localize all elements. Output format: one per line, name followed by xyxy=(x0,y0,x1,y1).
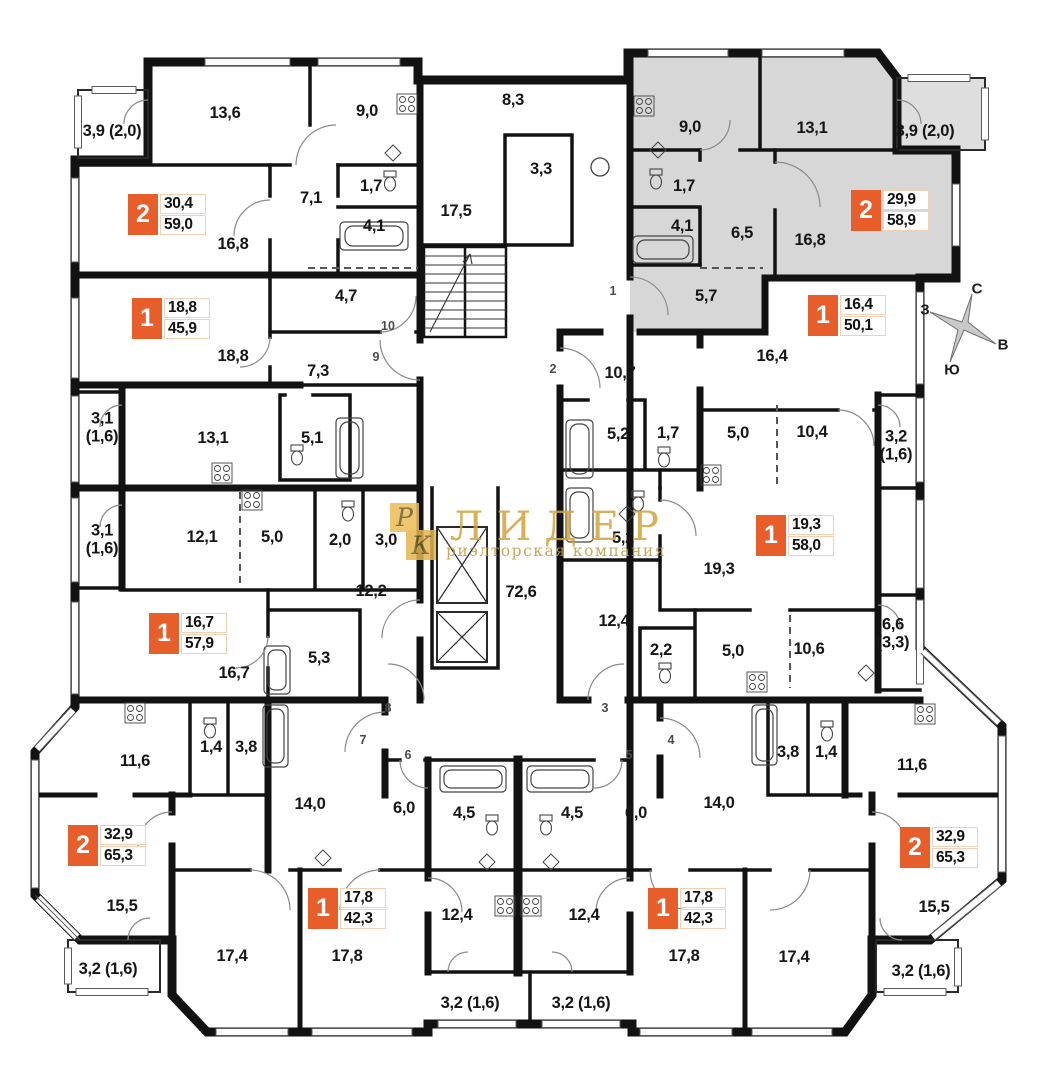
room-area-label: 4,7 xyxy=(335,287,357,305)
room-area-label: 12,2 xyxy=(356,582,387,600)
room-area-label: 16,7 xyxy=(219,664,250,682)
room-area-label: 11,6 xyxy=(897,756,927,774)
room-area-label: 18,8 xyxy=(218,347,249,365)
room-area-label: 5,2 xyxy=(612,529,634,547)
compass-star-icon xyxy=(930,294,996,362)
entrance-number: 2 xyxy=(550,362,557,376)
unit-badge: 1 17,8 42,3 xyxy=(308,888,386,929)
unit-rooms-count: 1 xyxy=(132,298,162,339)
unit-total-area: 42,3 xyxy=(680,909,726,929)
compass-west-label: З xyxy=(920,302,929,319)
room-area-label: 3,2 (1,6) xyxy=(552,994,611,1012)
unit-total-area: 65,3 xyxy=(100,846,146,866)
unit-living-area: 17,8 xyxy=(340,888,386,908)
unit-living-area: 29,9 xyxy=(883,190,929,210)
room-area-label: 16,8 xyxy=(218,235,249,253)
room-area-label: 9,0 xyxy=(679,118,701,136)
room-area-label: 5,0 xyxy=(722,642,744,660)
unit-total-area: 42,3 xyxy=(340,909,386,929)
unit-living-area: 30,4 xyxy=(160,194,206,214)
entrance-number: 3 xyxy=(602,701,609,715)
room-area-label: 15,5 xyxy=(919,898,950,916)
unit-rooms-count: 1 xyxy=(648,888,678,929)
unit-badge: 2 29,9 58,9 xyxy=(851,190,929,231)
room-area-label: 14,0 xyxy=(704,794,735,812)
room-area-label: 4,5 xyxy=(453,804,475,822)
unit-badge: 1 19,3 58,0 xyxy=(756,515,834,556)
unit-total-area: 58,9 xyxy=(883,211,929,231)
room-area-label: 3,3 xyxy=(530,160,552,178)
unit-badge: 2 32,9 65,3 xyxy=(900,827,978,868)
unit-total-area: 58,0 xyxy=(788,536,834,556)
room-area-label: 12,4 xyxy=(442,906,473,924)
room-area-label: 12,4 xyxy=(599,612,630,630)
room-area-label: 3,1 (1,6) xyxy=(75,522,129,559)
room-area-label: 4,1 xyxy=(671,217,693,235)
unit-living-area: 16,4 xyxy=(840,295,886,315)
room-area-label: 19,3 xyxy=(704,560,735,578)
unit-badge: 1 16,4 50,1 xyxy=(808,295,886,336)
room-area-label: 3,1 (1,6) xyxy=(75,410,129,447)
room-area-label: 4,1 xyxy=(363,217,385,235)
room-area-label: 3,2 (1,6) xyxy=(869,428,923,465)
unit-rooms-count: 1 xyxy=(756,515,786,556)
room-area-label: 1,4 xyxy=(200,738,222,756)
unit-total-area: 65,3 xyxy=(932,848,978,868)
entrance-number: 10 xyxy=(381,319,395,333)
unit-total-area: 50,1 xyxy=(840,316,886,336)
room-area-label: 12,1 xyxy=(187,528,218,546)
room-area-label: 72,6 xyxy=(506,583,537,601)
room-area-label: 13,6 xyxy=(210,104,241,122)
room-area-label: 6,6 (3,3) xyxy=(866,616,920,653)
room-area-label: 3,2 (1,6) xyxy=(79,960,138,978)
entrance-number: 5 xyxy=(626,748,633,762)
entrance-number: 6 xyxy=(405,748,412,762)
room-area-label: 6,5 xyxy=(731,224,753,242)
room-area-label: 6,0 xyxy=(393,799,415,817)
room-area-label: 1,7 xyxy=(673,177,695,195)
unit-rooms-count: 2 xyxy=(900,827,930,868)
unit-living-area: 32,9 xyxy=(932,827,978,847)
room-area-label: 3,9 (2,0) xyxy=(896,122,955,140)
room-area-label: 10,6 xyxy=(794,640,825,658)
room-area-label: 3,2 (1,6) xyxy=(892,962,951,980)
unit-total-area: 57,9 xyxy=(181,634,227,654)
room-area-label: 15,5 xyxy=(107,897,138,915)
unit-living-area: 18,8 xyxy=(164,298,210,318)
room-area-label: 10,7 xyxy=(605,364,636,382)
room-area-label: 17,5 xyxy=(441,202,472,220)
unit-rooms-count: 2 xyxy=(851,190,881,231)
unit-living-area: 19,3 xyxy=(788,515,834,535)
room-area-label: 14,0 xyxy=(295,795,326,813)
floor-plan: 13,6 9,0 3,9 (2,0) 8,3 7,1 1,7 4,1 17,5 … xyxy=(0,0,1058,1066)
room-area-label: 13,1 xyxy=(198,429,229,447)
room-area-label: 17,4 xyxy=(217,947,248,965)
room-area-label: 5,0 xyxy=(261,528,283,546)
unit-rooms-count: 1 xyxy=(808,295,838,336)
room-area-label: 3,2 (1,6) xyxy=(441,994,500,1012)
unit-total-area: 59,0 xyxy=(160,215,206,235)
room-area-label: 3,0 xyxy=(375,531,397,549)
room-area-label: 13,1 xyxy=(797,119,828,137)
compass-east-label: В xyxy=(998,337,1009,354)
unit-badge: 2 32,9 65,3 xyxy=(68,825,146,866)
unit-total-area: 45,9 xyxy=(164,319,210,339)
compass-south-label: Ю xyxy=(944,362,959,379)
room-area-label: 5,0 xyxy=(727,424,749,442)
unit-rooms-count: 1 xyxy=(149,613,179,654)
entrance-number: 7 xyxy=(360,733,367,747)
unit-badge: 1 16,7 57,9 xyxy=(149,613,227,654)
room-area-label: 17,8 xyxy=(669,947,700,965)
unit-rooms-count: 1 xyxy=(308,888,338,929)
compass-north-label: С xyxy=(972,281,983,298)
room-area-label: 5,1 xyxy=(301,429,323,447)
room-area-label: 6,0 xyxy=(625,804,647,822)
room-area-label: 3,8 xyxy=(777,743,799,761)
room-area-label: 5,3 xyxy=(308,649,330,667)
unit-rooms-count: 2 xyxy=(128,194,158,235)
entrance-number: 1 xyxy=(610,284,617,298)
room-area-label: 3,8 xyxy=(235,738,257,756)
room-area-label: 5,7 xyxy=(695,287,717,305)
room-area-label: 2,2 xyxy=(650,641,672,659)
room-area-label: 3,9 (2,0) xyxy=(83,122,142,140)
room-area-label: 5,2 xyxy=(607,425,629,443)
room-area-label: 1,7 xyxy=(360,177,382,195)
unit-rooms-count: 2 xyxy=(68,825,98,866)
unit-badge: 1 18,8 45,9 xyxy=(132,298,210,339)
room-area-label: 2,0 xyxy=(329,531,351,549)
room-area-label: 16,8 xyxy=(795,231,826,249)
unit-living-area: 17,8 xyxy=(680,888,726,908)
room-area-label: 8,3 xyxy=(502,91,524,109)
unit-living-area: 16,7 xyxy=(181,613,227,633)
unit-badge: 2 30,4 59,0 xyxy=(128,194,206,235)
room-area-label: 9,0 xyxy=(356,102,378,120)
room-area-label: 16,4 xyxy=(757,347,788,365)
room-area-label: 12,4 xyxy=(569,906,600,924)
unit-living-area: 32,9 xyxy=(100,825,146,845)
room-area-label: 7,1 xyxy=(300,189,322,207)
entrance-number: 9 xyxy=(373,350,380,364)
unit-badge: 1 17,8 42,3 xyxy=(648,888,726,929)
room-area-label: 17,8 xyxy=(332,947,363,965)
elevator-icon xyxy=(437,527,487,662)
room-area-label: 17,4 xyxy=(779,948,810,966)
entrance-number: 4 xyxy=(668,733,675,747)
garbage-chute-icon xyxy=(591,158,609,176)
room-area-label: 1,4 xyxy=(815,743,837,761)
room-area-label: 10,4 xyxy=(797,423,828,441)
room-area-label: 11,6 xyxy=(120,752,150,770)
entrance-number: 8 xyxy=(385,701,392,715)
room-area-label: 1,7 xyxy=(657,424,679,442)
room-area-label: 7,3 xyxy=(307,362,329,380)
room-area-label: 4,5 xyxy=(561,804,583,822)
